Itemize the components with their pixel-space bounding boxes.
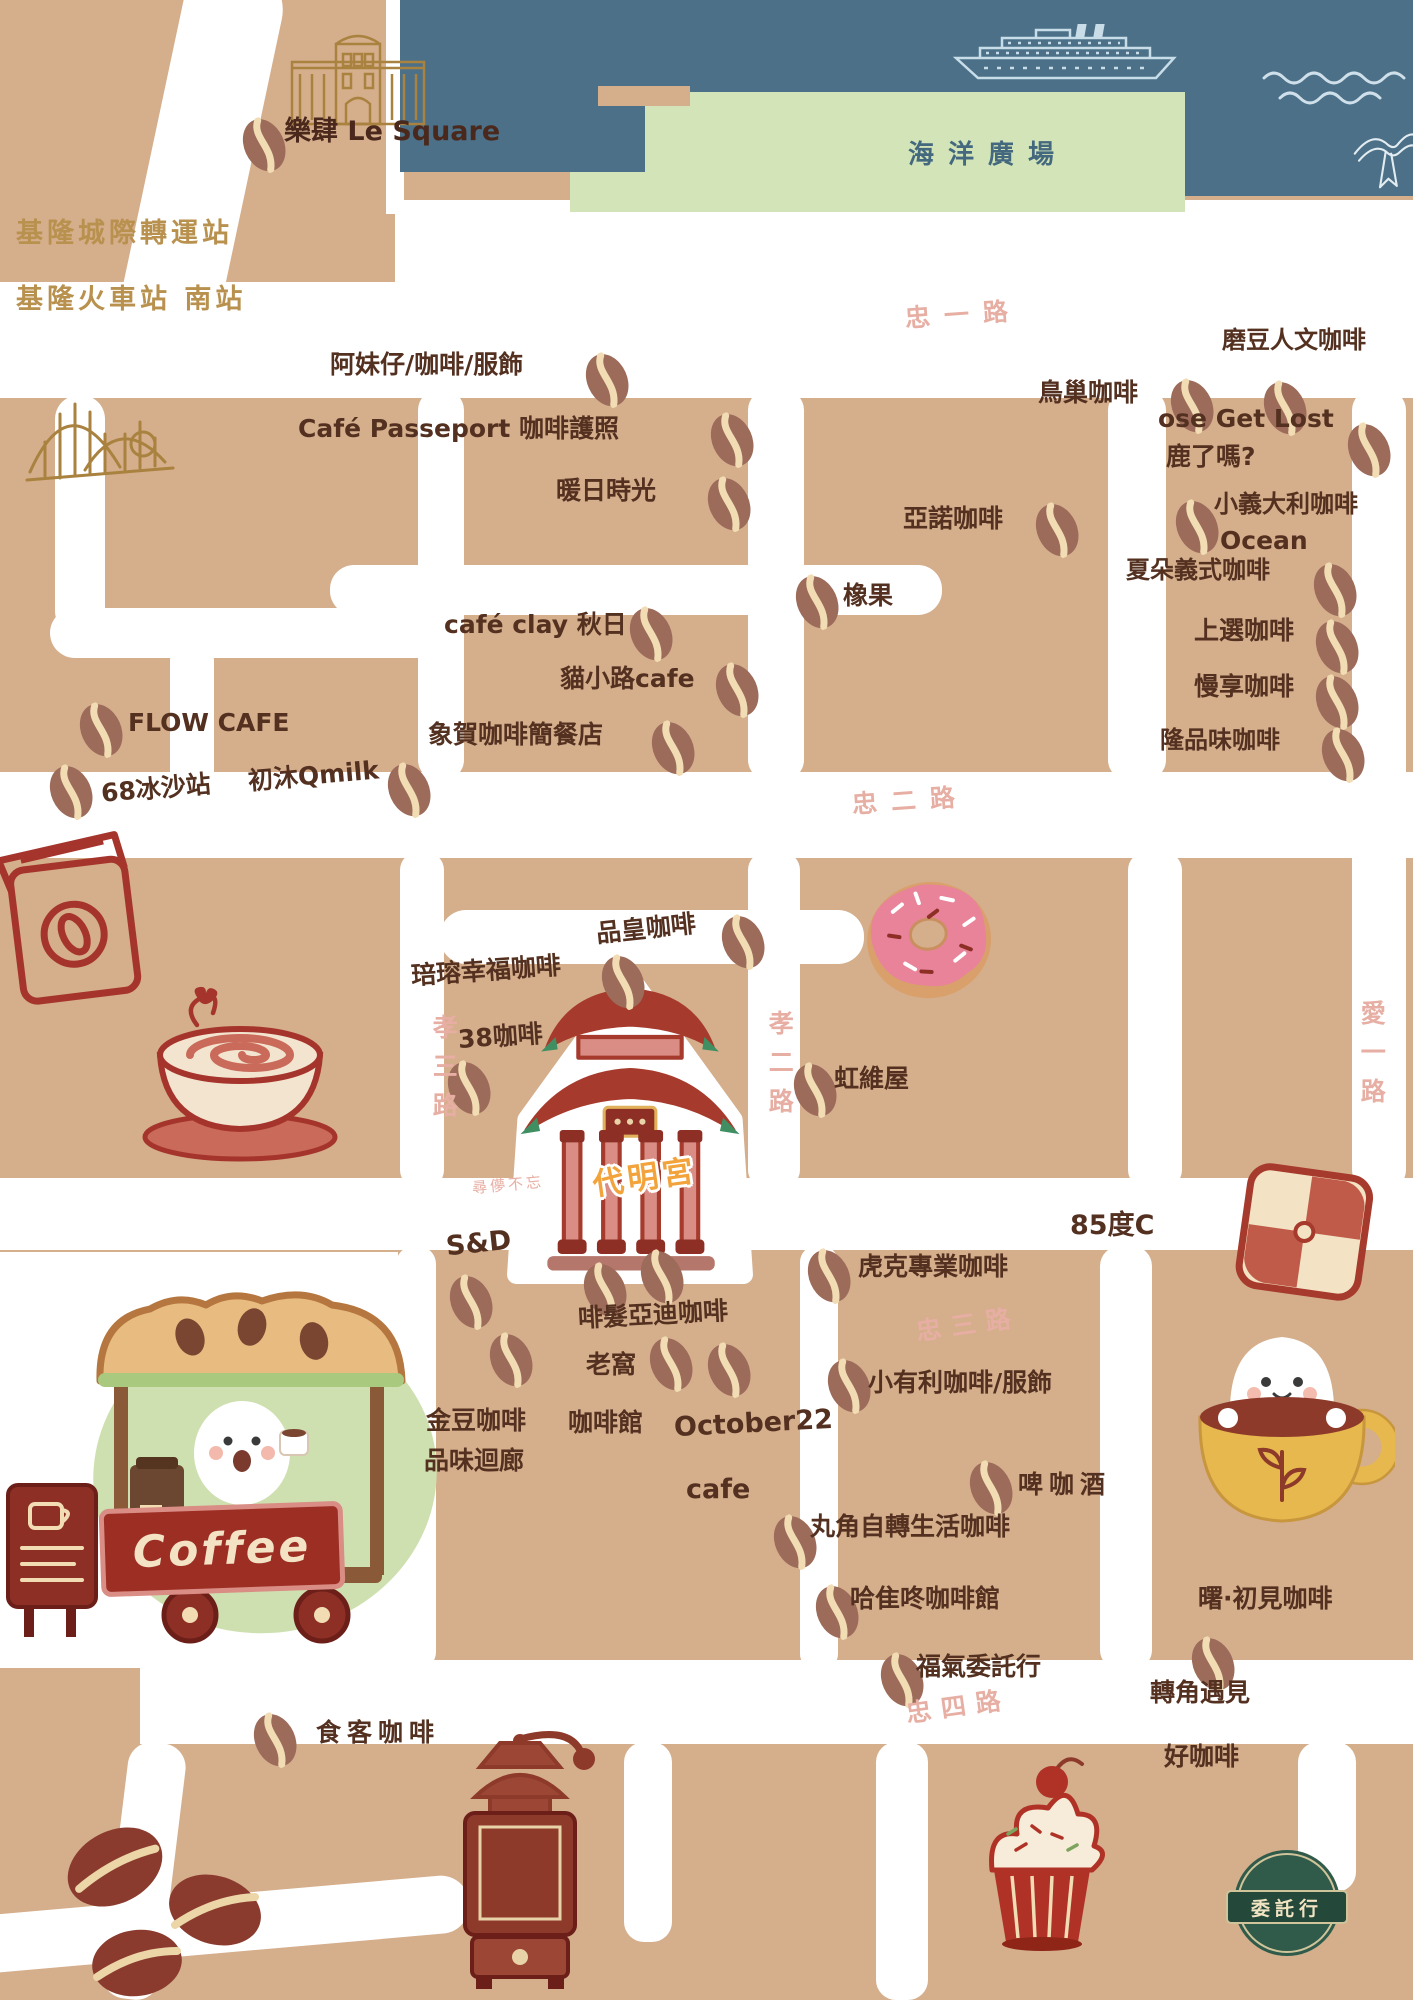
- donut-illustration: [853, 863, 1005, 1014]
- cafe-label: 68冰沙站: [100, 771, 212, 807]
- cafe-label: Café Passeport 咖啡護照: [298, 416, 619, 442]
- latte-cup-illustration: [135, 985, 340, 1174]
- cafe-label: café clay 秋日: [444, 612, 627, 638]
- cafe-label: FLOW CAFE: [128, 710, 290, 736]
- cafe-label: 老窩: [586, 1352, 636, 1378]
- cafe-label: 夏朵義式咖啡: [1126, 558, 1270, 583]
- cafe-label: 初沐Qmilk: [247, 757, 380, 795]
- cafe-label: 鳥巢咖啡: [1038, 380, 1138, 406]
- cafe-label: 品味迴廊: [424, 1448, 524, 1474]
- cafe-label: ose Get Lost: [1158, 406, 1334, 432]
- street-name-label: 孝三路: [430, 1014, 456, 1131]
- cafe-label: 咖啡館: [568, 1410, 643, 1436]
- cafe-label: 轉角遇見: [1150, 1680, 1250, 1706]
- coffee-grinder-illustration: [420, 1725, 620, 1999]
- cruise-ship-illustration: [950, 22, 1180, 88]
- cafe-label: 啡髮亞迪咖啡: [577, 1298, 728, 1332]
- cafe-label: 哈隹咚咖啡館: [850, 1586, 1000, 1612]
- cafe-label: 食客咖啡: [316, 1720, 440, 1746]
- cafe-label: S&D: [445, 1227, 513, 1262]
- cafe-label: 隆品味咖啡: [1160, 728, 1280, 753]
- cafe-label: 品皇咖啡: [595, 911, 697, 948]
- shop-logo-badge: 委託行: [1234, 1850, 1340, 1956]
- ghost-mug-illustration: [1170, 1322, 1395, 1536]
- cafe-label: 虎克專業咖啡: [858, 1254, 1008, 1280]
- cafe-label: 橡果: [843, 583, 893, 609]
- coffee-beans-illustration: [55, 1815, 285, 2000]
- station-label: 基隆城際轉運站: [16, 220, 233, 248]
- cafe-label: 暖日時光: [556, 478, 656, 504]
- cafe-label: 上選咖啡: [1194, 618, 1294, 644]
- cafe-label: 阿妹仔/咖啡/服飾: [330, 352, 523, 378]
- cafe-label: 38咖啡: [457, 1021, 543, 1053]
- cafe-label: 鹿了嗎?: [1166, 444, 1256, 470]
- logo-banner: 委託行: [1226, 1890, 1348, 1924]
- station-label: 基隆火車站 南站: [16, 286, 246, 314]
- keelung-coffee-map: 尋儚不忘 代明宮: [0, 0, 1413, 2000]
- cafe-label: 好咖啡: [1164, 1744, 1239, 1770]
- cafe-label: 虹維屋: [834, 1066, 909, 1092]
- cafe-label: cafe: [686, 1476, 750, 1504]
- coffee-cart-illustration: [70, 1285, 440, 1654]
- cafe-label: 小義大利咖啡: [1214, 492, 1358, 517]
- street-name-label: 孝二路: [766, 1010, 792, 1127]
- landmark-label: 樂肆 Le Square: [284, 118, 500, 146]
- cafe-label: October22: [673, 1406, 833, 1443]
- temple-illustration: [505, 975, 755, 1289]
- cafe-label: 慢享咖啡: [1194, 674, 1294, 700]
- coffee-cart-sign: Coffee: [99, 1501, 346, 1597]
- cafe-label: 小有利咖啡/服飾: [868, 1370, 1052, 1396]
- cafe-label: 福氣委託行: [916, 1654, 1041, 1680]
- harbor-plaza-label: 海洋廣場: [908, 134, 1068, 171]
- street-name-label: 愛一路: [1358, 1000, 1384, 1117]
- logo-banner-label: 委託行: [1251, 1894, 1323, 1921]
- biscuit-illustration: [1222, 1151, 1386, 1319]
- cafe-label: 象賀咖啡簡餐店: [428, 722, 603, 748]
- coffee-cart-sign-label: Coffee: [132, 1520, 312, 1577]
- cafe-label: 磨豆人文咖啡: [1222, 328, 1366, 353]
- menu-board-illustration: [0, 1470, 105, 1649]
- cafe-label: 金豆咖啡: [426, 1408, 526, 1434]
- cafe-label: 亞諾咖啡: [903, 506, 1003, 532]
- bridge-sketch-illustration: [25, 372, 175, 491]
- cafe-label: 丸角自轉生活咖啡: [810, 1514, 1010, 1540]
- cupcake-illustration: [972, 1750, 1112, 1959]
- cafe-label: Ocean: [1220, 528, 1308, 554]
- cafe-label: 貓小路cafe: [560, 666, 695, 692]
- seabird-icon: [1352, 100, 1413, 219]
- cafe-label: 曙·初見咖啡: [1198, 1586, 1333, 1612]
- cafe-label: 85度C: [1070, 1212, 1154, 1240]
- cafe-label: 啤咖酒: [1018, 1472, 1111, 1498]
